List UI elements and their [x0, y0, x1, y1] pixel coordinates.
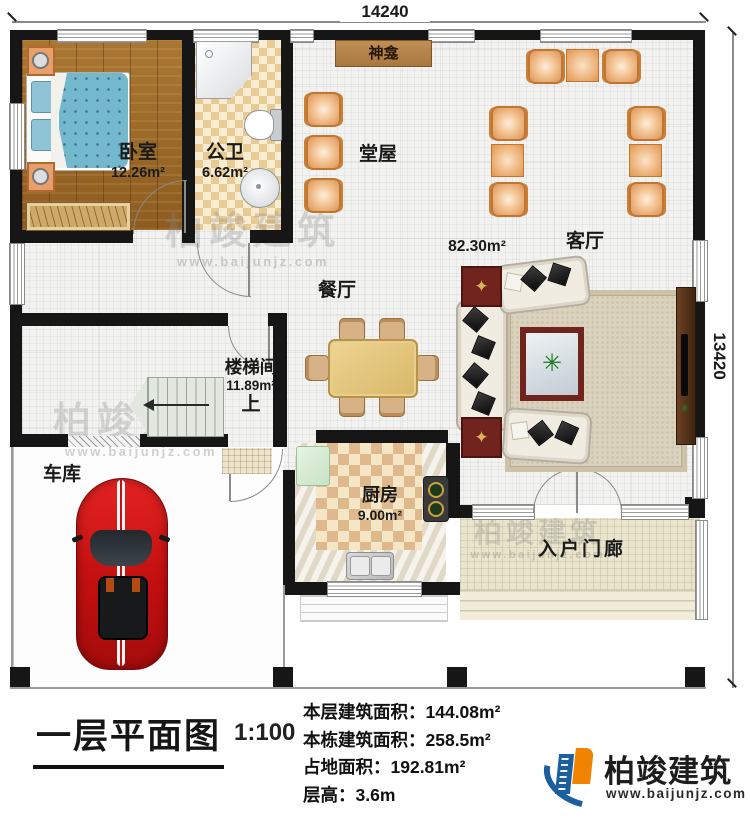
tv-cabinet: ✳: [676, 287, 696, 445]
room-area: 9.00m²: [330, 507, 430, 524]
sofa-cushion: [462, 362, 489, 389]
stair-arrowhead-icon: [143, 399, 154, 411]
wall: [257, 30, 290, 40]
car-engine-cover: [98, 576, 148, 640]
sofa-cushion: [471, 335, 496, 360]
wall: [145, 30, 193, 40]
stat-value: 144.08m²: [426, 702, 501, 722]
hall-chair: [306, 135, 341, 170]
sink-drain-icon: [256, 184, 261, 189]
wall: [458, 505, 472, 518]
sofa-cushion: [471, 391, 496, 416]
wall: [10, 313, 228, 326]
sofa-left: [456, 300, 508, 432]
stat-row: 占地面积：192.81m²: [303, 754, 553, 782]
wall: [10, 30, 22, 103]
sofa-cushion: [520, 265, 547, 292]
window: [428, 29, 475, 43]
room-label-living: 客厅: [558, 231, 612, 254]
sofa-cushion: [527, 420, 554, 447]
room-area: 11.89m²: [210, 378, 292, 394]
logo-building-orange: [572, 748, 594, 784]
room-label-bedroom: 卧室 12.26m²: [93, 142, 183, 182]
stat-row: 本层建筑面积：144.08m²: [303, 699, 553, 727]
brand-url: www.baijunjz.com: [606, 786, 747, 801]
car: [76, 478, 166, 668]
garage-left-line: [11, 447, 13, 688]
brand-logo-icon: [540, 742, 598, 806]
dining-table: [328, 339, 418, 398]
column: [273, 667, 293, 687]
wall: [281, 40, 293, 243]
room-label-hall: 堂屋: [348, 144, 408, 167]
stair-direction-arrow: [152, 404, 209, 406]
toilet: [244, 108, 281, 140]
room-name: 厨房: [330, 485, 430, 507]
window: [193, 29, 259, 43]
sofa-pillow: [504, 272, 524, 292]
hall-chair: [604, 49, 639, 84]
wall: [418, 582, 460, 595]
brand-block: 柏竣建筑 www.baijunjz.com: [540, 740, 748, 812]
sofa-cushion: [462, 306, 489, 333]
stair-up-label: 上: [210, 394, 292, 417]
stat-row: 本栋建筑面积：258.5m²: [303, 727, 553, 755]
car-windshield: [90, 530, 152, 566]
burner-icon: [428, 482, 444, 498]
brand-name: 柏竣建筑: [604, 746, 732, 791]
sink-basin: [350, 556, 370, 576]
plan-scale: 1:100: [234, 719, 295, 747]
burner-icon: [428, 501, 444, 517]
hall-tea-table: [566, 49, 599, 82]
window: [540, 29, 632, 43]
wall: [283, 470, 295, 585]
column: [10, 667, 30, 687]
shower-drain-icon: [205, 50, 213, 58]
plan-bottom-line: [10, 687, 706, 689]
stat-label: 本层建筑面积：: [303, 702, 426, 722]
room-name: 楼梯间: [210, 357, 292, 378]
wall: [10, 230, 133, 243]
wall: [250, 230, 293, 243]
lamp-icon: [32, 52, 49, 69]
window: [472, 504, 535, 520]
window: [621, 504, 689, 520]
column: [685, 667, 705, 687]
nightstand: [27, 162, 55, 192]
kitchen-sink: [346, 552, 394, 580]
shrine-label: 神龛: [368, 45, 398, 63]
shrine-cabinet: 神龛: [335, 40, 432, 67]
plan-stats: 本层建筑面积：144.08m² 本栋建筑面积：258.5m² 占地面积：192.…: [303, 699, 553, 809]
sofa-bottom: [501, 407, 592, 465]
hall-chair: [306, 178, 341, 213]
stat-value: 3.6m: [356, 785, 396, 805]
compass-star-icon: ✦: [474, 277, 488, 297]
sofa-cushion: [547, 262, 571, 286]
window: [57, 29, 147, 43]
room-label-dining: 餐厅: [312, 280, 362, 303]
room-name: 卧室: [93, 142, 183, 165]
end-table: ✦: [461, 266, 502, 307]
garage-landing-steps: [222, 448, 272, 474]
hall-chair: [491, 106, 526, 141]
plant-icon: ✳: [680, 404, 689, 415]
window: [9, 103, 25, 170]
fridge: [296, 446, 330, 486]
dining-chair: [305, 355, 329, 381]
sink-basin: [371, 556, 391, 576]
porch-steps: [460, 590, 700, 620]
end-table: ✦: [461, 417, 502, 458]
wall: [10, 434, 68, 447]
hall-chair: [528, 49, 563, 84]
nightstand: [27, 46, 55, 76]
hall-tea-table: [629, 144, 662, 177]
room-label-garage: 车库: [32, 464, 92, 487]
window: [692, 437, 708, 499]
living-area-label: 82.30m²: [445, 238, 509, 257]
dimension-line-right: [732, 33, 734, 688]
lamp-icon: [32, 168, 49, 185]
hall-chair: [306, 92, 341, 127]
room-area: 6.62m²: [185, 165, 265, 182]
window: [327, 581, 422, 597]
column: [447, 667, 467, 687]
plant-icon: ✳: [542, 352, 562, 376]
bathroom-door-leaf: [248, 243, 250, 296]
stat-label: 本栋建筑面积：: [303, 730, 426, 750]
hall-chair: [491, 182, 526, 217]
wall: [312, 30, 428, 40]
entry-door-leaves: [576, 468, 578, 513]
stat-row: 层高：3.6m: [303, 782, 553, 810]
wall: [283, 582, 329, 595]
plan-title: 一层平面图: [33, 708, 224, 769]
hall-chair: [629, 106, 664, 141]
stair-landing-hatch: [68, 436, 140, 447]
stat-value: 192.81m²: [391, 757, 466, 777]
floor-plan-page: 柏竣建筑 www.baijunjz.com 柏竣建筑 www.baijunjz.…: [0, 0, 750, 817]
toilet-bowl: [244, 110, 274, 140]
wardrobe: [26, 202, 131, 231]
dimension-width-label: 14240: [340, 2, 430, 22]
window: [9, 243, 25, 305]
coffee-table: ✳: [520, 327, 584, 401]
room-label-kitchen: 厨房 9.00m²: [330, 485, 430, 523]
hall-chair: [629, 182, 664, 217]
wall: [693, 33, 705, 240]
room-name: 公卫: [185, 142, 265, 165]
bedroom-door-leaf: [184, 180, 186, 233]
garage-right-line: [283, 585, 285, 667]
bed-pillow: [31, 81, 53, 113]
wall: [316, 430, 448, 443]
room-label-stairwell: 楼梯间 11.89m² 上: [210, 357, 292, 417]
stat-label: 层高：: [303, 785, 356, 805]
room-area: 12.26m²: [93, 165, 183, 182]
sofa-cushion: [554, 420, 579, 445]
wall: [473, 30, 540, 40]
hall-tea-table: [491, 144, 524, 177]
porch-side-rail: [695, 520, 708, 620]
room-label-bathroom: 公卫 6.62m²: [185, 142, 265, 182]
window: [290, 29, 314, 43]
compass-star-icon: ✦: [474, 428, 488, 448]
dining-chair: [415, 355, 439, 381]
stat-label: 占地面积：: [303, 757, 391, 777]
bed-pillow: [31, 119, 53, 151]
kitchen-front-steps: [300, 595, 448, 622]
tv: [681, 334, 688, 396]
dimension-height-label: 13420: [709, 316, 729, 396]
room-label-porch: 入户门廊: [520, 539, 644, 562]
stat-value: 258.5m²: [426, 730, 491, 750]
